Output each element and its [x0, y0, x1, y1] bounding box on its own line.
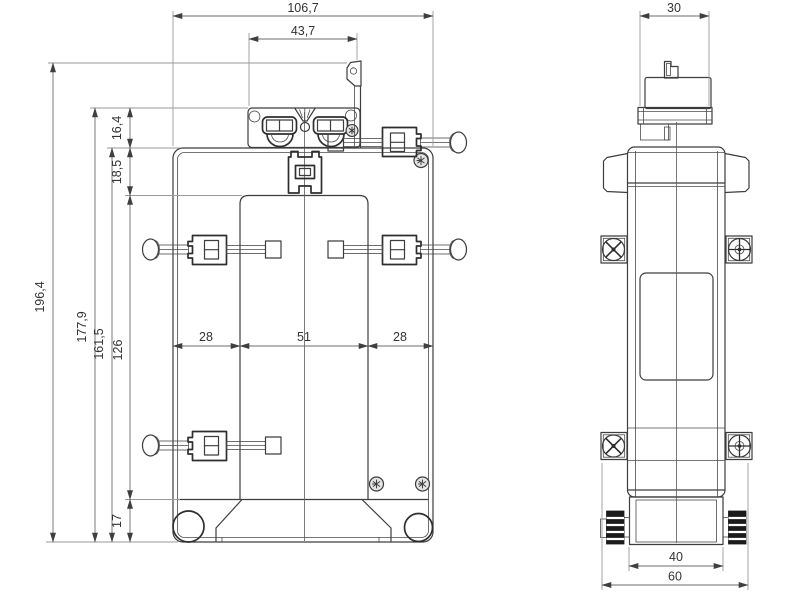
dim-text-side-body-width: 40: [669, 550, 683, 564]
terminal-cover-left: [263, 117, 297, 146]
dim-text-terminal-width: 43,7: [291, 24, 315, 38]
dim-window-height: 126: [111, 196, 130, 500]
dim-base-height: 17: [110, 500, 130, 543]
drawing-canvas: 106,7 43,7 196,4 177,9 161,5 16,4 18,5: [0, 0, 800, 600]
case-screw-bottom-left: [370, 477, 384, 491]
dim-side-overall-width: 60: [602, 570, 748, 586]
dim-case-top-to-window: 18,5: [110, 148, 130, 196]
dim-window-width: 51: [240, 330, 368, 346]
dim-text-left-section: 28: [199, 330, 213, 344]
clamp-upper-left: [143, 236, 282, 265]
dim-text-terminal-height: 16,4: [110, 116, 124, 140]
dim-text-right-section: 28: [393, 330, 407, 344]
side-screw-mid-left: [603, 435, 625, 457]
dim-text-side-top-width: 30: [667, 1, 681, 15]
side-screw-upper-left: [603, 239, 625, 261]
dim-right-section: 28: [368, 330, 433, 346]
front-view: [143, 61, 467, 542]
dim-text-window-width: 51: [297, 330, 311, 344]
dim-side-body-width: 40: [629, 550, 723, 566]
dim-terminal-width: 43,7: [249, 24, 357, 39]
case-screw-bottom-right: [416, 477, 430, 491]
side-bottom-clamp: [601, 497, 747, 545]
dim-text-total-height: 196,4: [33, 281, 47, 312]
knurled-knob-right: [729, 511, 747, 544]
dim-total-height: 196,4: [33, 63, 53, 542]
front-case: [173, 112, 433, 542]
dim-text-side-overall-width: 60: [668, 570, 682, 584]
terminal-cover-right: [314, 117, 348, 146]
dim-text-case-top-to-window: 18,5: [110, 160, 124, 184]
dim-text-overall-width: 106,7: [287, 1, 318, 15]
knurled-knob-left: [607, 511, 625, 544]
dim-text-base-height: 17: [110, 514, 124, 528]
side-view: [601, 62, 753, 545]
dim-height-terminal-top: 177,9: [75, 108, 95, 542]
terminal-screw: [346, 125, 358, 137]
clamp-upper-right: [328, 236, 467, 265]
clamp-lower-left: [143, 432, 282, 461]
dim-text-height-terminal-top: 177,9: [75, 311, 89, 342]
drawing-page: 106,7 43,7 196,4 177,9 161,5 16,4 18,5: [0, 0, 800, 600]
side-screw-upper-right: [729, 239, 751, 261]
dim-text-case-height: 161,5: [92, 328, 106, 359]
side-top-assembly: [638, 62, 712, 141]
dim-text-window-height: 126: [111, 340, 125, 361]
din-clip: [289, 152, 322, 194]
dim-overall-width: 106,7: [173, 1, 433, 16]
side-wing-left: [604, 154, 628, 193]
side-body: [604, 122, 750, 543]
side-screw-mid-right: [729, 435, 751, 457]
dimensions: 106,7 43,7 196,4 177,9 161,5 16,4 18,5: [33, 1, 748, 590]
dim-left-section: 28: [173, 330, 240, 346]
side-wing-right: [725, 154, 749, 193]
dim-side-top-width: 30: [640, 1, 709, 16]
dim-terminal-height: 16,4: [110, 108, 130, 148]
